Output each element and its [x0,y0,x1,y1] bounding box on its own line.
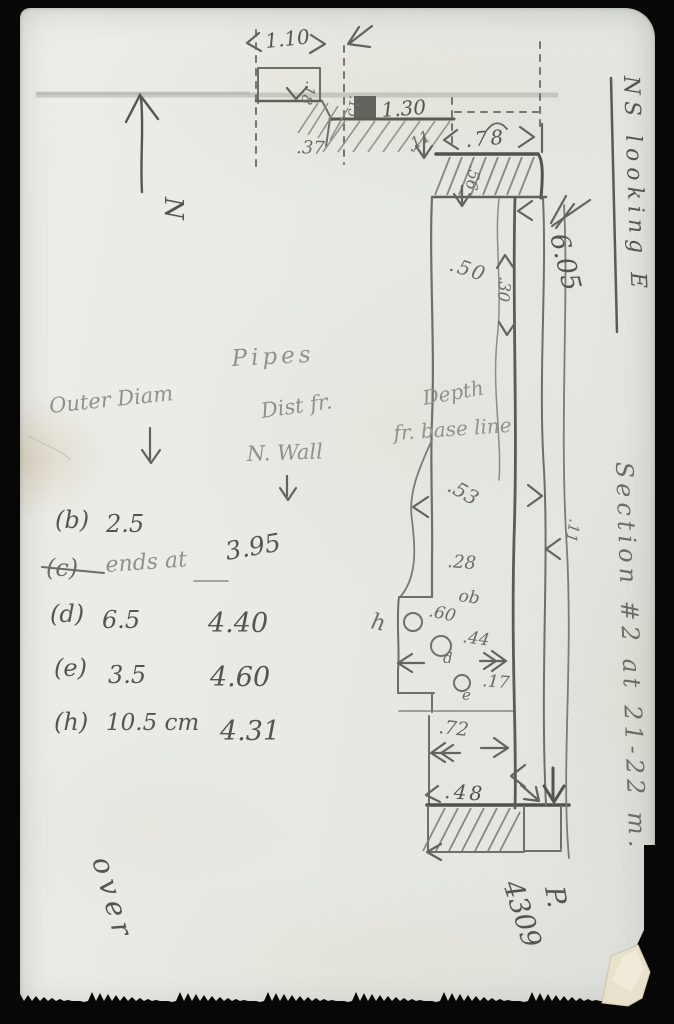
pipe-h-label: h [369,609,388,636]
graphite-smudge [36,93,558,95]
east-offset-value: 6.05 [543,230,586,293]
row-dist: 4.31 [219,716,280,747]
page-abbrev: P. [538,883,572,910]
chevron-right-icon [310,35,325,53]
chevron-left-icon [511,765,525,787]
dim-bottom-width: .48 [444,779,486,806]
arrow-left-icon [398,654,424,672]
dim-inner-width: .50 [446,252,489,287]
chevron-left-icon [247,33,261,51]
row-dist: 4.40 [207,608,268,639]
table-row: (h) 10.5 cm 4.31 [54,708,280,747]
arrow-up-left-icon [551,196,590,228]
col-dist-line1: Dist fr. [258,389,333,423]
row-outer-diam: 10.5 cm [106,710,199,736]
row-note: ends at [105,547,188,578]
north-arrow [126,95,158,192]
north-label: N [158,196,188,221]
paper-crease [28,436,70,460]
over-note: over [85,853,141,945]
row-outer-diam: 6.5 [102,606,140,634]
pipe-d-depth: .44 [461,627,491,651]
dim-offset-left: .37 [296,137,326,159]
col-outer-diam: Outer Diam [48,381,174,418]
page-number: 4309 [496,876,547,952]
row-outer-diam: 3.5 [108,661,146,689]
row-id: (h) [54,708,88,736]
pipe-circles [404,613,470,691]
dim-band-depth: .56 [462,163,485,191]
table-row: (e) 3.5 4.60 [54,654,270,693]
depth-note-line1: Depth [420,376,486,411]
side-title: NS looking E [618,74,651,294]
section-note: Section #2 at 21-22 m. [610,461,652,852]
chevron-right-icon [519,124,542,152]
row-dist: 4.60 [209,662,270,693]
table-row: (c) ends at 3.95 [46,528,283,582]
arrow-down-right-icon [521,785,539,801]
arrow-right-icon [481,738,508,757]
pipe-e-depth: .17 [482,671,511,693]
dim-depth-b: .28 [447,551,477,574]
dim-wall-thickness: .30 [494,276,515,303]
arrow-left-icon [348,26,372,47]
chevron-left-icon [546,539,560,559]
chevron-right-icon [528,485,542,506]
perforated-bottom-edge [16,992,624,1024]
table-row: (b) 2.5 [55,506,144,538]
arrow-right-icon [480,651,506,671]
pipe-d-label: d [443,649,453,667]
mark-ob: ob [457,586,481,609]
dim-row-depth: .72 [437,716,469,741]
chevron-left-icon [413,497,428,517]
depth-note-line2: fr. base line [391,413,513,445]
row-id: (e) [54,654,87,682]
dim-ledge-width: 1.30 [381,95,427,122]
dimension-arrows [142,26,590,860]
chevron-left-icon [518,201,532,220]
title-underline [611,78,617,332]
row-id-struck: (c) [46,554,78,582]
row-id: (b) [55,506,89,534]
chevron-up-icon [497,255,513,268]
table-row: (d) 6.5 4.40 [50,600,268,639]
pencil-sketch-layer: N NS looking E 6.05 Section #2 at 21-22 … [0,0,674,1024]
dim-step-offset: .15 [344,95,362,119]
dim-box-depth: .18 [297,79,321,107]
row-id: (d) [50,600,84,628]
pipes-table-title: Pipes [230,342,315,372]
arrow-down-icon [142,428,160,463]
arrow-down-icon [280,476,296,500]
scanned-field-note: { "page": { "description": "Scanned hand… [0,0,674,1024]
row-outer-diam: 2.5 [105,510,144,538]
pipe-h-circle [404,613,422,631]
col-dist-line2: N. Wall [245,439,323,466]
dim-right-width: .78 [464,125,507,152]
arrow-down-icon [544,768,564,802]
chevron-down-icon [499,322,515,335]
dim-top-width: 1.10 [264,24,311,53]
pipe-h-depth: .60 [427,601,458,626]
dim-depth-a: .53 [444,474,484,511]
arrow-left-icon [431,743,460,762]
row-dist: 3.95 [223,528,283,566]
pipe-e-label: e [462,686,471,704]
